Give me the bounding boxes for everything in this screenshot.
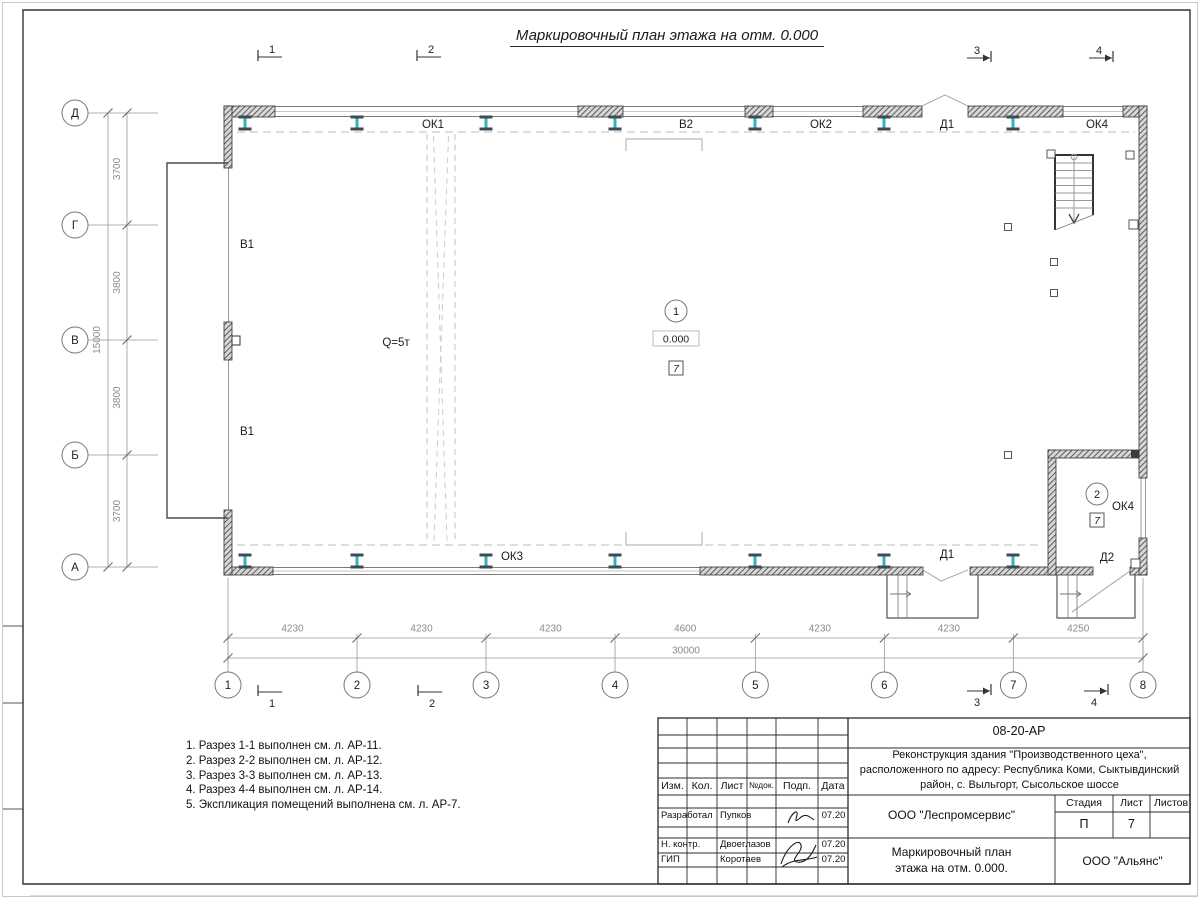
element-mark: ОК1 [422,119,444,131]
axis-label-col: 3 [483,680,489,692]
element-mark: Q=5т [382,337,410,349]
column-flange [609,554,622,557]
dim-value-row: 3700 [112,499,123,522]
column-flange [878,116,891,119]
column-web [1012,557,1015,566]
titleblock-header-cell: Подп. [776,780,818,792]
column-web [1012,119,1015,128]
axis-label-row: Б [71,450,79,462]
dim-value-col: 4230 [281,624,304,635]
titleblock-stage-header: Лист [1113,797,1150,809]
column-web [485,557,488,566]
titleblock-header-cell: Дата [818,780,848,792]
signatures [781,812,817,867]
element-mark: Д1 [940,119,954,131]
titleblock-name: Пупков [720,810,776,821]
dim-value-col: 4250 [1067,624,1090,635]
column-web [883,557,886,566]
column-flange [878,554,891,557]
dim-value-col: 4230 [938,624,961,635]
element-mark: Д1 [940,549,954,561]
column-flange [1007,566,1020,569]
column-flange [878,566,891,569]
titleblock-project-line1: Реконструкция здания "Производственного … [849,749,1190,761]
elevation-value: 0.000 [663,334,689,346]
titleblock-stage-value: П [1056,817,1112,831]
element-mark: ОК3 [501,551,523,563]
column-web [754,557,757,566]
column-flange [239,116,252,119]
dim-total-row: 15000 [92,326,103,354]
axis-label-col: 2 [354,680,360,692]
titleblock-stage-header: Стадия [1055,797,1113,809]
axis-label-row: В [71,335,79,347]
column-flange [1007,128,1020,131]
titleblock-role: ГИП [661,854,716,865]
notes-list: 1. Разрез 1-1 выполнен см. л. АР-11.2. Р… [186,739,461,813]
note-item: 3. Разрез 3-3 выполнен см. л. АР-13. [186,769,461,784]
column-flange [239,566,252,569]
column-flange [609,566,622,569]
dim-value-col: 4230 [809,624,832,635]
column-flange [609,116,622,119]
column-flange [351,554,364,557]
dim-value-row: 3800 [112,386,123,409]
pilaster-axis-v [232,336,240,345]
section-number: 2 [428,44,434,56]
section-number: 2 [429,698,435,710]
column-flange [609,128,622,131]
column-web [614,119,617,128]
section-number: 4 [1096,45,1102,57]
titleblock-drawing-title-line2: этажа на отм. 0.000. [849,861,1054,875]
column-web [244,119,247,128]
column-marks [1005,150,1135,459]
section-arrowhead [983,688,990,695]
column-web [754,119,757,128]
column-flange [239,554,252,557]
column-flange [239,128,252,131]
titleblock-drawing-title-line1: Маркировочный план [849,845,1054,859]
dim-value-row: 3800 [112,271,123,294]
titleblock-date: 07.20 [820,854,847,865]
axis-label-col: 5 [752,680,758,692]
entry-arrow [1060,591,1081,597]
column-web [356,557,359,566]
dim-value-col: 4230 [410,624,433,635]
door-gap-d1-bottom [923,564,970,577]
door-swings [922,95,1130,612]
titleblock-stage-header: Листов [1150,797,1192,809]
axis-label-col: 4 [612,680,619,692]
column-flange [480,566,493,569]
column-flange [351,566,364,569]
axis-label-col: 8 [1140,680,1146,692]
page-title: Маркировочный план этажа на отм. 0.000 [427,27,907,44]
room-number: 1 [673,306,679,318]
section-arrowhead [1100,688,1107,695]
titleblock-date: 07.20 [820,839,847,850]
column-flange [480,116,493,119]
note-item: 1. Разрез 1-1 выполнен см. л. АР-11. [186,739,461,754]
entry-arrow [890,591,911,597]
column-flange [749,116,762,119]
section-arrowhead [1105,55,1112,62]
element-mark: В1 [240,426,254,438]
titleblock-org: ООО "Леспромсервис" [849,808,1054,822]
titleblock-sheet-number: 7 [1114,817,1149,831]
column-flange [480,554,493,557]
room-number: 2 [1094,489,1100,501]
column-web [356,119,359,128]
column-flange [1007,554,1020,557]
section-number: 1 [269,698,275,710]
porches [887,575,1135,618]
axis-label-col: 7 [1010,680,1016,692]
column-flange [351,128,364,131]
column-web [485,119,488,128]
element-mark: ОК2 [810,119,832,131]
section-number: 1 [269,44,275,56]
axis-label-col: 6 [881,680,887,692]
sheet-frame [3,3,1198,897]
drawing-sheet: ДГВБА37003800380037001500012345678423042… [0,0,1200,900]
titleblock-header-cell: Кол. [687,780,717,792]
column-flange [351,116,364,119]
door-gap-d1-top [922,103,968,119]
axis-label-row: Г [72,220,79,232]
note-item: 5. Экспликация помещений выполнена см. л… [186,798,461,813]
titleblock-header-cell: Лист [717,780,747,792]
element-mark: ОК4 [1086,119,1109,131]
note-item: 4. Разрез 4-4 выполнен см. л. АР-14. [186,783,461,798]
column-web [614,557,617,566]
titleblock-header-cell: Изм. [658,780,687,792]
titleblock-role: Н. контр. [661,839,716,850]
column-web [244,557,247,566]
axis-label-col: 1 [225,680,231,692]
dim-value-col: 4230 [539,624,562,635]
column-flange [878,128,891,131]
column-flange [480,128,493,131]
titleblock-name: Коротаев [720,854,776,865]
titleblock-company: ООО "Альянс" [1056,854,1189,868]
dim-value-col: 4600 [674,624,697,635]
column-flange [749,128,762,131]
element-mark: В2 [679,119,693,131]
section-arrowhead [983,55,990,62]
element-mark: В1 [240,239,254,251]
partition-corner [1131,450,1139,458]
stairs [1055,154,1093,230]
titleblock-role: Разработал [661,810,716,821]
annex-outline [167,163,228,518]
note-item: 2. Разрез 2-2 выполнен см. л. АР-12. [186,754,461,769]
column-flange [749,554,762,557]
titleblock-name: Двоеглазов [720,839,776,850]
column-flange [749,566,762,569]
titleblock-header-cell: №док. [747,780,776,790]
titleblock-doc-number: 08-20-АР [848,724,1190,738]
titleblock-project-line3: район, с. Выльгорт, Сысольское шоссе [849,779,1190,791]
element-mark: Д2 [1100,552,1114,564]
axis-label-row: А [71,562,79,574]
titleblock-project-line2: расположенного по адресу: Республика Ком… [849,764,1190,776]
dim-total-col: 30000 [672,646,700,657]
column-web [883,119,886,128]
section-number: 4 [1091,697,1097,709]
section-number: 3 [974,697,980,709]
column-flange [1007,116,1020,119]
section-number: 3 [974,45,980,57]
element-mark: ОК4 [1112,501,1135,513]
axis-label-row: Д [71,108,79,120]
titleblock-date: 07.20 [820,810,847,821]
dim-value-row: 3700 [112,157,123,180]
